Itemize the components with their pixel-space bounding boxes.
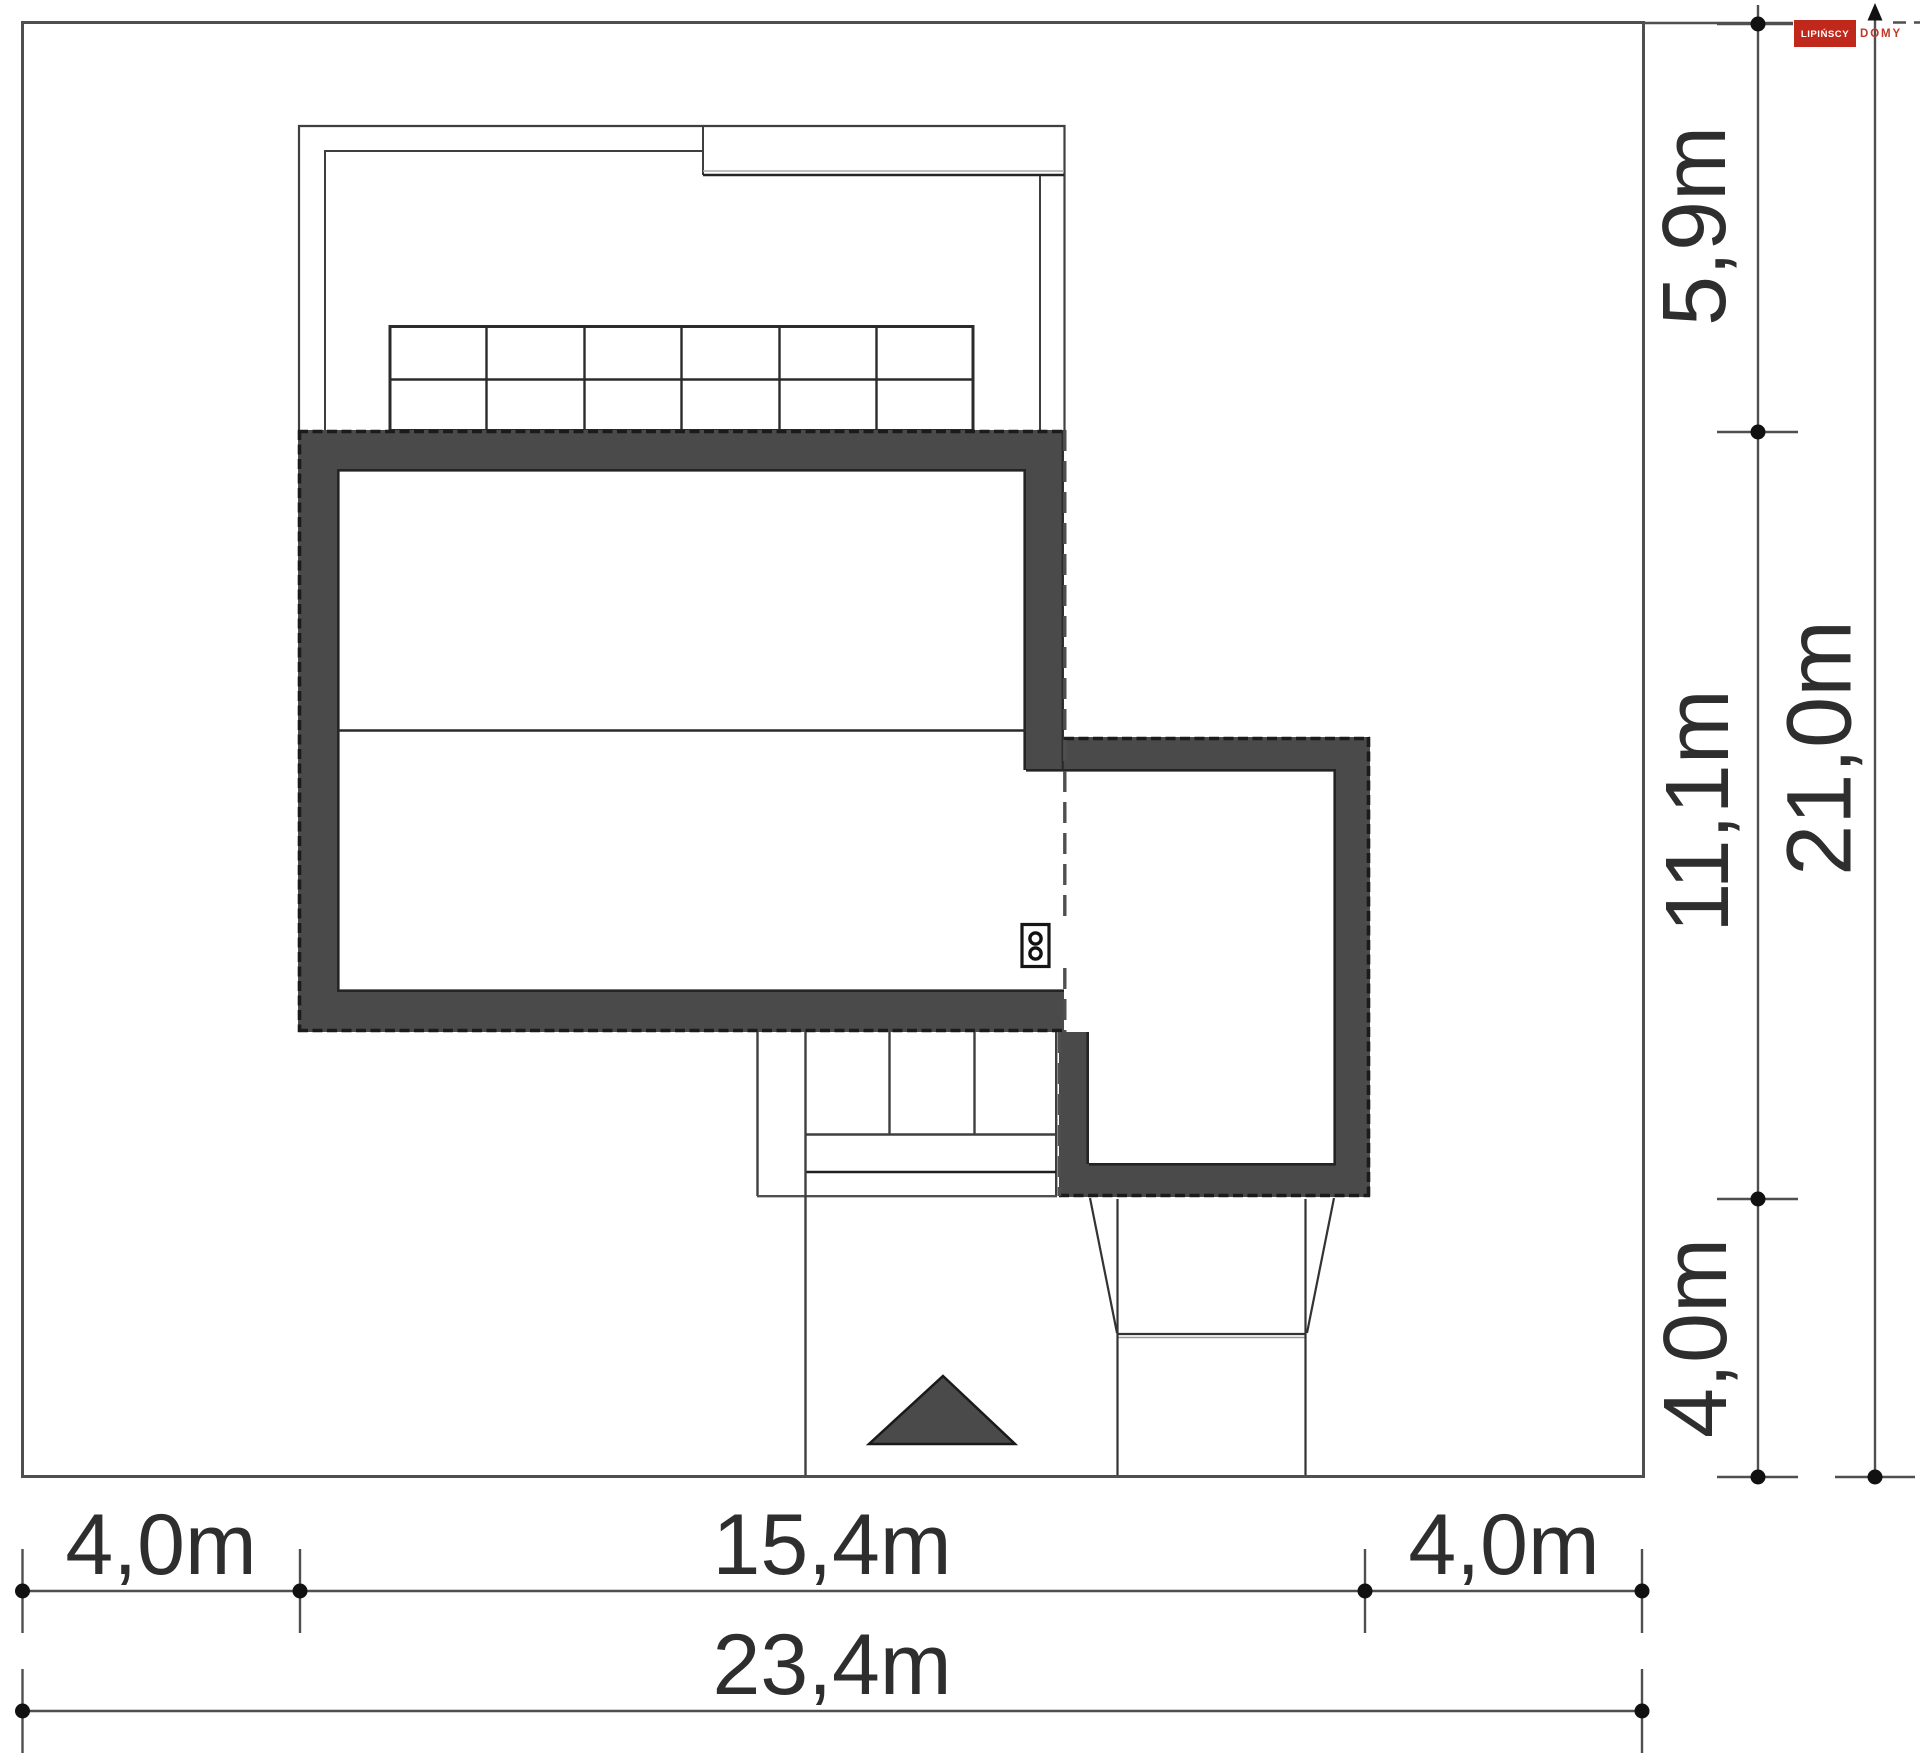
svg-text:15,4m: 15,4m xyxy=(712,1497,951,1593)
svg-text:11,1m: 11,1m xyxy=(1648,689,1748,932)
svg-text:4,0m: 4,0m xyxy=(1408,1497,1599,1593)
svg-text:4,0m: 4,0m xyxy=(1646,1238,1746,1438)
svg-text:21,0m: 21,0m xyxy=(1768,620,1870,876)
svg-text:23,4m: 23,4m xyxy=(712,1617,951,1713)
svg-text:5,9m: 5,9m xyxy=(1645,126,1745,326)
svg-text:4,0m: 4,0m xyxy=(65,1497,256,1593)
svg-text:DOMY: DOMY xyxy=(1860,28,1902,40)
svg-text:LIPIŃSCY: LIPIŃSCY xyxy=(1801,28,1849,40)
